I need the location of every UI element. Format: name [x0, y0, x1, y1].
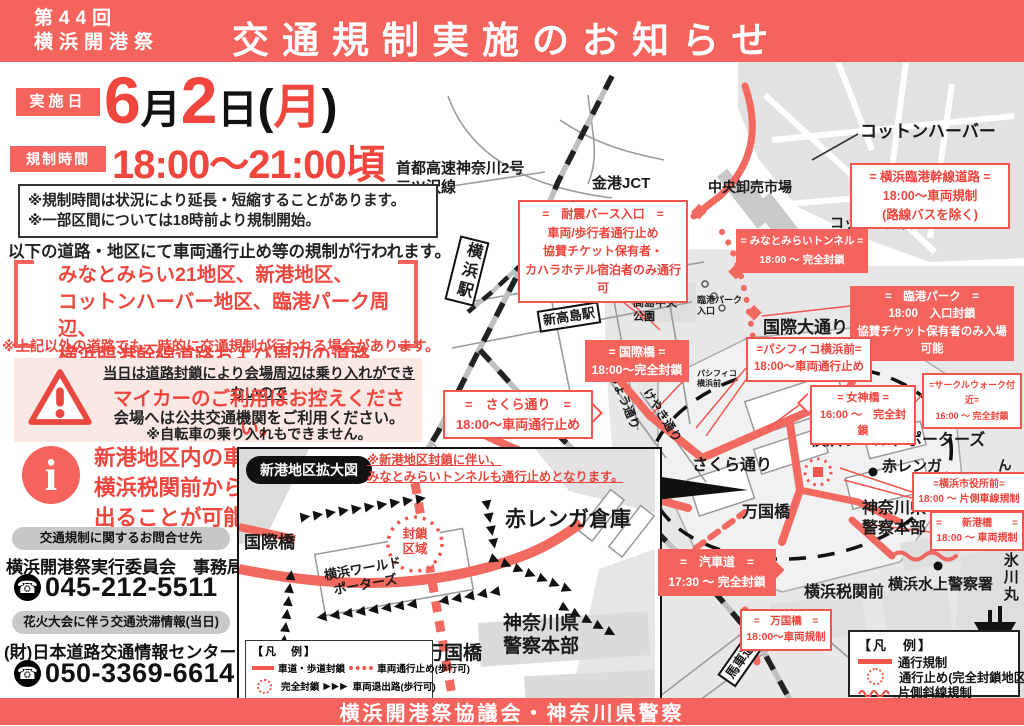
time-label-badge: 規制時間 — [10, 146, 106, 172]
callout-minatomirai-tunnel: = みなとみらいトンネル =18:00 〜 完全封鎖 — [736, 229, 868, 273]
phone-number: 050-3369-6614 — [45, 658, 235, 689]
inset-label-kanagawa-police-hq: 神奈川県 警察本部 — [503, 613, 579, 659]
map-label-bankoku-bridge: 万国橋 — [742, 503, 790, 523]
svg-text:▶▶▶▶: ▶▶▶▶ — [480, 499, 504, 553]
info-icon: i — [22, 446, 80, 504]
footer-bar: 横浜開港祭協議会・神奈川県警察 — [0, 698, 1024, 725]
inset-legend-no-vehicle-dots — [349, 666, 373, 670]
notice-box: ※規制時間は状況により延長・短縮することがあります。 ※一部区間については18時… — [18, 184, 438, 238]
callout-rinko-kansen-road: = 横浜臨港幹線道路 =18:00〜車両規制(路線バスを除く) — [850, 163, 1010, 229]
intro-text: 以下の道路・地区にて車両通行止め等の規制が行われます。 — [8, 238, 451, 262]
inset-legend-full-closure-circle — [257, 679, 272, 694]
notice-line1: ※規制時間は状況により延長・短縮することがあります。 — [28, 191, 428, 211]
contact1-heading: 交通規制に関するお問合せ先 — [12, 527, 230, 550]
callout-shinko-bridge: = 新港橋 =18:00 〜 車両規制 — [930, 511, 1024, 551]
shinko-district-inset-map: ▶▶▶▶▶▶ ▶▶▶▶▶▶▶▶▶▶ ▶▶▶▶ ▶▶▶▶▶▶▶ ◀◀◀◀◀◀◀◀ … — [237, 447, 662, 714]
inset-label-akarenga-warehouse: 赤レンガ倉庫 — [505, 507, 631, 532]
date-label-badge: 実施日 — [16, 88, 100, 116]
map-label-rinko-park-entrance: 臨港パーク 入口 — [697, 295, 742, 318]
inset-note: ※新港地区封鎖に伴い、 みなとみらいトンネルも通行止めとなります。 — [367, 452, 623, 486]
map-label-sakura-street: さくら通り — [692, 456, 772, 476]
legend-hatched-symbol — [858, 687, 892, 697]
callout-pacifico-front: =パシフィコ横浜前=18:00〜車両通行止め — [746, 337, 872, 382]
map-label-water-police: 横浜水上警察署 — [888, 576, 993, 595]
phone-number: 045-212-5511 — [45, 572, 218, 603]
callout-kokusai-bridge: = 国際橋 =18:00〜完全封鎖 — [585, 340, 689, 382]
map-label-pacifico: パシフィコ 横浜前 — [697, 369, 737, 389]
callout-megami-bridge: = 女神橋 =16:00 〜 完全封鎖 — [810, 385, 916, 445]
legend-regulation-line — [858, 659, 892, 664]
contact1-phone: ☎ 045-212-5511 — [14, 572, 218, 603]
footer-text: 横浜開港祭協議会・神奈川県警察 — [340, 697, 685, 726]
contact2-heading: 花火大会に伴う交通渋滞情報(当日) — [12, 611, 230, 634]
callout-kishamichi: = 汽車道 =17:30 〜 完全封鎖 — [658, 549, 776, 596]
inset-legend-closure-line — [252, 666, 274, 670]
bracket-left — [14, 260, 34, 348]
inset-title: 新港地区拡大図 — [246, 456, 372, 484]
event-date: 6月2日(月) — [104, 62, 337, 138]
map-label-customs-front: 横浜税関前 — [804, 583, 884, 603]
map-label-hikawa-maru: 氷川丸 — [1000, 552, 1019, 603]
inset-label-closed-zone: 封鎖 区域 — [389, 527, 441, 557]
district-note: ※上記以外の道路でも一時的に交通規制が行われる場合があります。 — [2, 336, 439, 356]
legend-full-closure-circle — [867, 668, 884, 685]
map-legend: 【凡 例】 通行規制 通行止め(完全封鎖地区) 片側斜線規制 — [848, 630, 1020, 697]
warning-line4: ※自転車の乗り入れもできません。 — [100, 424, 418, 444]
inset-legend: 【凡 例】 車道・歩道封鎖 車両通行止め(歩行可) 完全封鎖 ▶▶▶車両退出路(… — [245, 640, 433, 702]
notice-line2: ※一部区間については18時前より規制開始。 — [28, 211, 428, 231]
inset-legend-title: 【凡 例】 — [252, 643, 426, 659]
edition-line1: 第44回 — [34, 8, 117, 29]
map-label-wholesale-market: 中央卸売市場 — [708, 179, 792, 197]
callout-taishin-berth: = 耐震バース入口 =車両/歩行者通行止め協賛チケット保有者・カハラホテル宿泊者… — [518, 200, 688, 303]
map-label-cotton-harbor: コットンハーバー — [860, 121, 996, 142]
edition-line2: 横浜開港祭 — [34, 32, 159, 53]
warning-box: 当日は道路封鎖により会場周辺は乗り入れができないので マイカーのご利用はお控えく… — [14, 358, 422, 442]
regulated-districts: みなとみらい21地区、新港地区、 コットンハーバー地区、臨港パーク周辺、 横浜臨… — [14, 260, 418, 340]
event-edition: 第44回横浜開港祭 — [34, 7, 159, 55]
callout-circle-walk: =サークルウォーク付近=16:00 〜 完全封鎖 — [922, 373, 1022, 429]
callout-city-hall-front: =横浜市役所前=18:00 〜 片側車線規制 — [912, 472, 1024, 512]
callout-bankoku-bridge: = 万国橋 =18:00〜車両規制 — [740, 609, 832, 651]
phone-icon: ☎ — [14, 574, 41, 601]
callout-sakura-street: = さくら通り =18:00〜車両通行止め — [443, 390, 593, 439]
page-title: 交通規制実施のお知らせ — [232, 10, 781, 64]
warning-triangle-icon — [28, 366, 92, 428]
callout-rinko-park: = 臨港パーク =18:00 入口封鎖協賛チケット保有者のみ入場可能 — [850, 286, 1014, 361]
legend-title: 【凡 例】 — [858, 635, 1010, 654]
map-label-kinko-jct: 金港JCT — [592, 175, 650, 194]
contact2-phone: ☎ 050-3369-6614 — [14, 658, 235, 689]
map-label-kokusai-avenue: 国際大通り — [763, 317, 848, 338]
inset-label-kokusai-bridge: 国際橋 — [244, 533, 295, 553]
phone-icon: ☎ — [14, 660, 41, 687]
regulation-time: 18:00〜21:00頃 — [112, 132, 385, 190]
inset-legend-exit-arrows: ▶▶▶ — [323, 681, 348, 692]
